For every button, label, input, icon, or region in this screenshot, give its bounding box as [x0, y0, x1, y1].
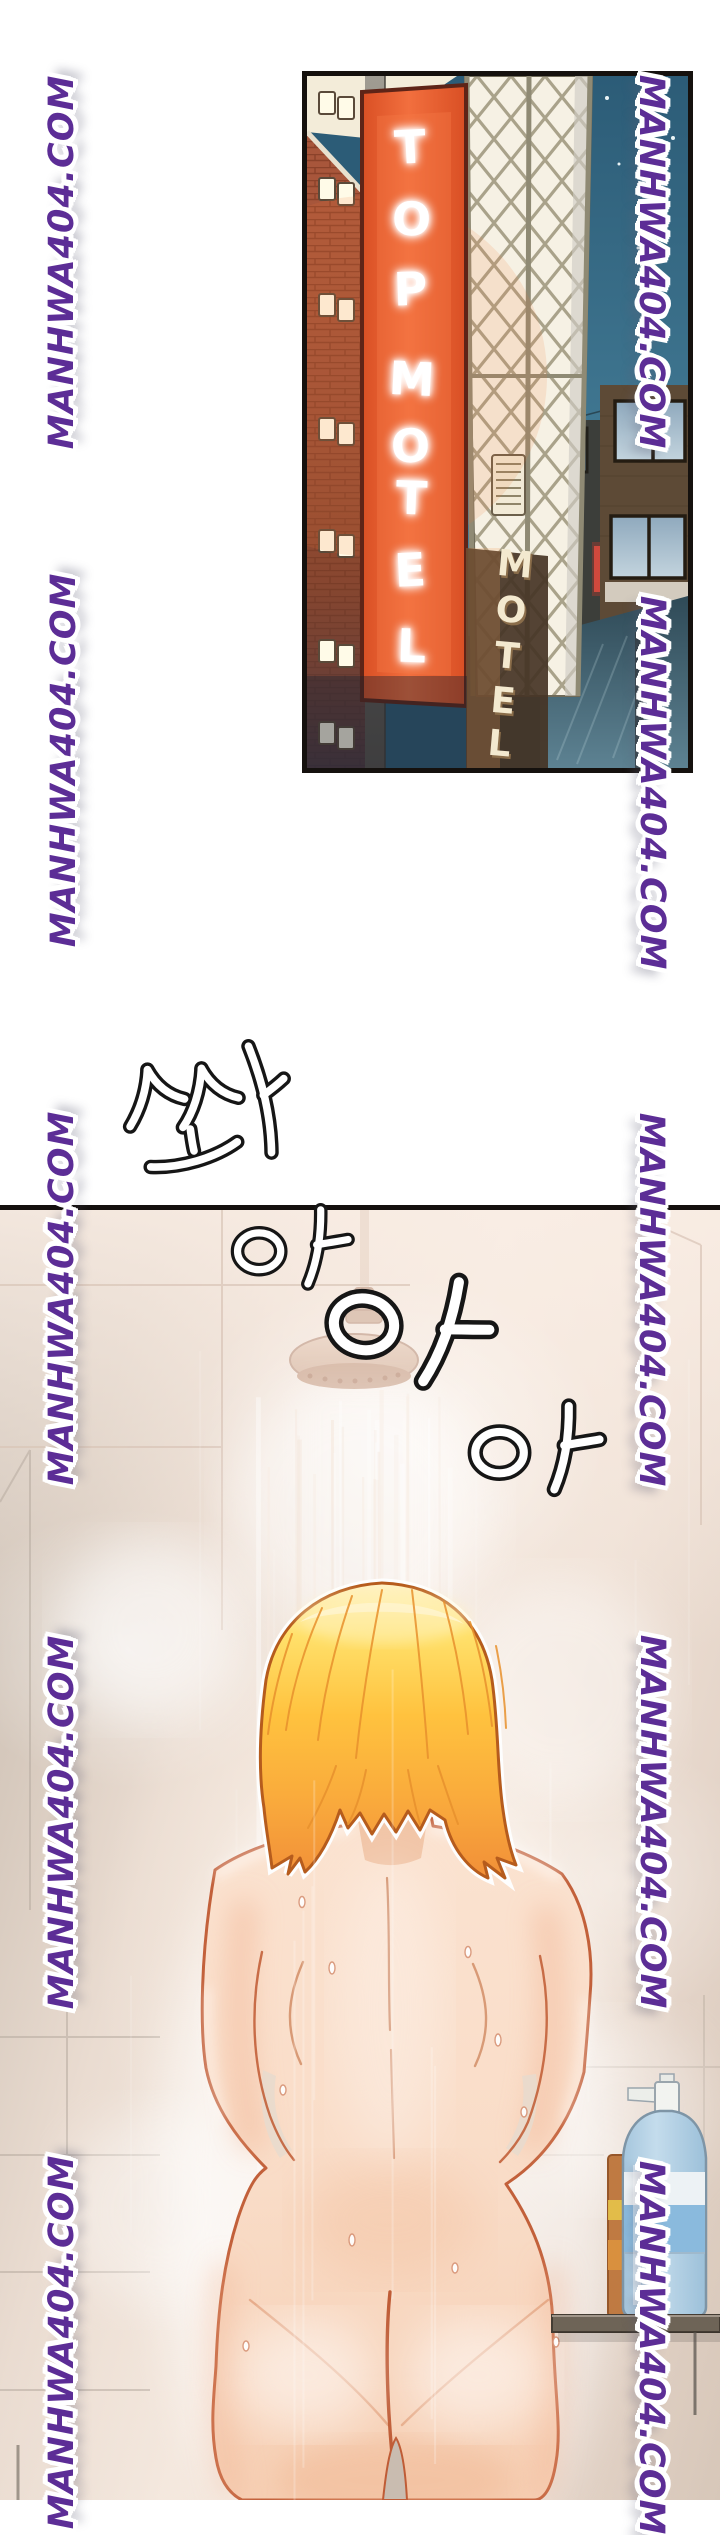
- svg-text:P: P: [393, 261, 429, 316]
- svg-text:O: O: [390, 418, 431, 473]
- small-motel-sign: MMOOTTEELL: [466, 543, 548, 768]
- svg-text:L: L: [486, 723, 512, 766]
- svg-text:T: T: [393, 119, 428, 175]
- svg-text:O: O: [391, 191, 432, 246]
- bottom-shadow: [307, 676, 467, 768]
- svg-text:L: L: [396, 619, 427, 674]
- shower-panel-art: [0, 1210, 720, 2500]
- svg-text:M: M: [495, 543, 534, 587]
- sfx-sshaaa: [118, 1038, 301, 1184]
- svg-text:E: E: [489, 680, 517, 723]
- shelf: [552, 2315, 720, 2332]
- top-motel-sign: TOPMOTEL: [362, 85, 466, 706]
- motel-exterior-panel: TOPMOTEL MMOOTTEELL: [302, 71, 693, 773]
- svg-text:O: O: [494, 589, 528, 633]
- svg-text:E: E: [393, 542, 427, 598]
- shower-head: [290, 1210, 418, 1389]
- comic-page: { "page": { "type": "webtoon-comic-page"…: [0, 0, 720, 2500]
- svg-text:T: T: [493, 635, 521, 678]
- site-watermark: MANHWA404.COM: [42, 75, 82, 450]
- shower-scene-panel: [0, 1205, 720, 2500]
- svg-text:T: T: [395, 470, 429, 525]
- svg-text:M: M: [388, 351, 437, 407]
- motel-panel-art: TOPMOTEL MMOOTTEELL: [307, 76, 688, 768]
- site-watermark: MANHWA404.COM: [44, 573, 84, 948]
